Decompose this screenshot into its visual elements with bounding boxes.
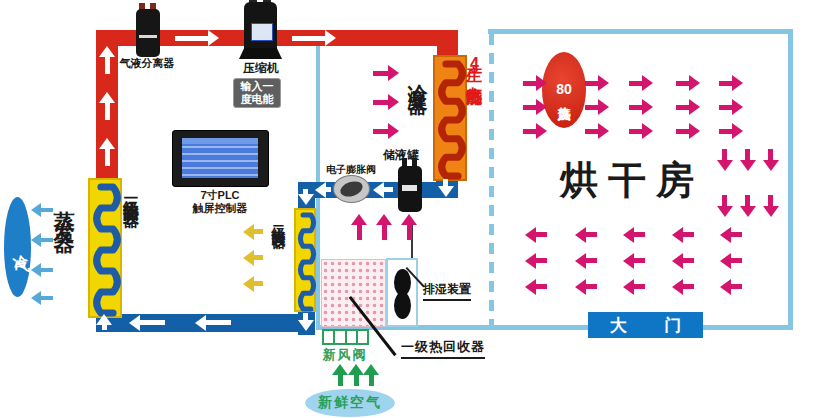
hot-air-arrow: [585, 75, 609, 91]
stage1-heat-recovery-panel: [321, 259, 386, 327]
heat-energy-label: 产生4度电热能: [466, 53, 482, 77]
refrigerant-flow-arrow: [99, 138, 115, 166]
plc-screen[interactable]: [182, 138, 258, 178]
cold-air-oval: 冷气: [4, 197, 31, 297]
return-air-arrow: [575, 279, 597, 295]
plc-label: 7寸PLC 触屏控制器: [164, 189, 276, 215]
hot-air-arrow: [373, 123, 399, 139]
hot-air-arrow: [719, 123, 743, 139]
refrigerant-flow-arrow: [175, 30, 219, 46]
cold-air-arrow: [31, 291, 53, 305]
hot-air-arrow: [629, 75, 653, 91]
fresh-air-label: 新鲜空气: [318, 394, 382, 412]
cold-air-arrow: [31, 233, 53, 247]
cold-air-arrow: [31, 203, 53, 217]
hot-air-arrow: [763, 195, 779, 217]
hot-air-arrow: [719, 75, 743, 91]
main-door-label: 大门: [610, 314, 719, 337]
receiver-tank: [398, 158, 422, 212]
return-air-arrow: [720, 279, 742, 295]
refrigerant-flow-arrow: [298, 189, 314, 205]
return-air-arrow: [525, 227, 547, 243]
evaporator-label: 蒸发器: [54, 194, 75, 227]
return-air-arrow: [575, 227, 597, 243]
recovered-heat-arrow: [243, 276, 263, 292]
dehumidifier-label: 排湿装置: [423, 281, 471, 301]
fresh-air-arrow: [348, 364, 364, 386]
fresh-air-valve-label: 新风阀: [320, 346, 370, 364]
hot-air-arrow: [740, 195, 756, 217]
hot-air-arrow: [676, 123, 700, 139]
return-air-arrow: [623, 279, 645, 295]
return-air-arrow: [525, 279, 547, 295]
condenser-label: 冷凝器: [408, 68, 428, 86]
plc-controller[interactable]: [172, 130, 269, 187]
heat-flow-arrow: [376, 214, 392, 240]
fresh-air-oval: 新鲜空气: [305, 389, 395, 417]
return-air-arrow: [525, 253, 547, 269]
return-air-arrow: [672, 253, 694, 269]
refrigerant-flow-arrow: [129, 315, 165, 331]
hot-air-arrow: [717, 195, 733, 217]
compressor: [239, 0, 282, 59]
partition-dashed-wall: [489, 34, 494, 325]
hot-air-arrow: [763, 149, 779, 171]
fresh-air-arrow: [363, 364, 379, 386]
refrigerant-flow-arrow: [315, 182, 331, 198]
hot-air-arrow: [373, 65, 399, 81]
return-air-arrow: [720, 253, 742, 269]
hot-air-arrow: [629, 99, 653, 115]
gas-liquid-separator: [136, 3, 160, 57]
return-air-arrow: [720, 227, 742, 243]
hot-air-arrow: [585, 123, 609, 139]
hot-air-arrow: [719, 99, 743, 115]
drying-room-title: 烘干房: [560, 155, 704, 206]
refrigerant-flow-arrow: [99, 92, 115, 120]
return-air-arrow: [623, 253, 645, 269]
refrigerant-flow-arrow: [438, 179, 454, 197]
recovered-heat-arrow: [243, 250, 263, 266]
stage3-label: 三级热回收器: [123, 184, 139, 202]
return-air-arrow: [623, 227, 645, 243]
recovered-heat-arrow: [243, 224, 263, 240]
compressor-label: 压缩机: [236, 60, 286, 77]
refrigerant-flow-arrow: [292, 30, 336, 46]
stage2-label: 二级热回收器: [272, 214, 286, 226]
fan-blade-icon: [394, 292, 411, 319]
hot-gas-pipe-elbow: [437, 30, 458, 58]
hot-air-arrow: [676, 99, 700, 115]
hot-air-80-oval: 80 度热风: [542, 52, 586, 128]
hot-air-arrow: [740, 149, 756, 171]
hot-air-arrow: [373, 94, 399, 110]
stage1-label: 一级热回收器: [401, 338, 485, 359]
hot-air-arrow: [523, 123, 547, 139]
drying-room-wall-top: [488, 29, 793, 34]
hot-air-arrow: [676, 75, 700, 91]
heat-flow-arrow: [351, 214, 367, 240]
fresh-air-arrow: [332, 364, 348, 386]
cold-air-arrow: [31, 263, 53, 277]
hot-air-arrow: [523, 75, 547, 91]
hot-air-arrow: [585, 99, 609, 115]
hot-air-text: 度热风: [558, 96, 571, 99]
hot-air-temp: 80: [556, 82, 572, 96]
hot-air-arrow: [523, 99, 547, 115]
refrigerant-flow-arrow: [96, 314, 112, 330]
heat-pump-dryer-diagram: 冷气 80 度热风 新鲜空气 大门 气液分离器 压缩机 输入一 度电能 7寸PL…: [0, 0, 819, 418]
hot-air-arrow: [629, 123, 653, 139]
expansion-valve: [333, 175, 370, 203]
stage3-heat-recovery-coil: [88, 178, 122, 318]
return-air-arrow: [672, 279, 694, 295]
condenser-coil: [433, 55, 467, 181]
drying-room-wall-right: [788, 29, 793, 330]
heat-flow-arrow: [401, 214, 417, 240]
return-air-arrow: [575, 253, 597, 269]
dehumidifier-fan-box: [386, 258, 418, 327]
return-air-arrow: [672, 227, 694, 243]
fresh-air-valve: [322, 329, 369, 345]
main-door[interactable]: 大门: [588, 312, 703, 338]
refrigerant-flow-arrow: [195, 315, 231, 331]
compressor-energy-badge: 输入一 度电能: [233, 78, 281, 108]
receiver-label: 储液罐: [383, 147, 419, 164]
expansion-valve-label: 电子膨胀阀: [326, 163, 376, 177]
hot-air-arrow: [717, 149, 733, 171]
refrigerant-flow-arrow: [373, 182, 393, 198]
cold-air-label: 冷气: [9, 241, 25, 252]
refrigerant-flow-arrow: [99, 46, 115, 74]
stage2-heat-recovery-coil: [294, 208, 316, 312]
refrigerant-flow-arrow: [298, 313, 314, 331]
separator-label: 气液分离器: [114, 56, 180, 71]
